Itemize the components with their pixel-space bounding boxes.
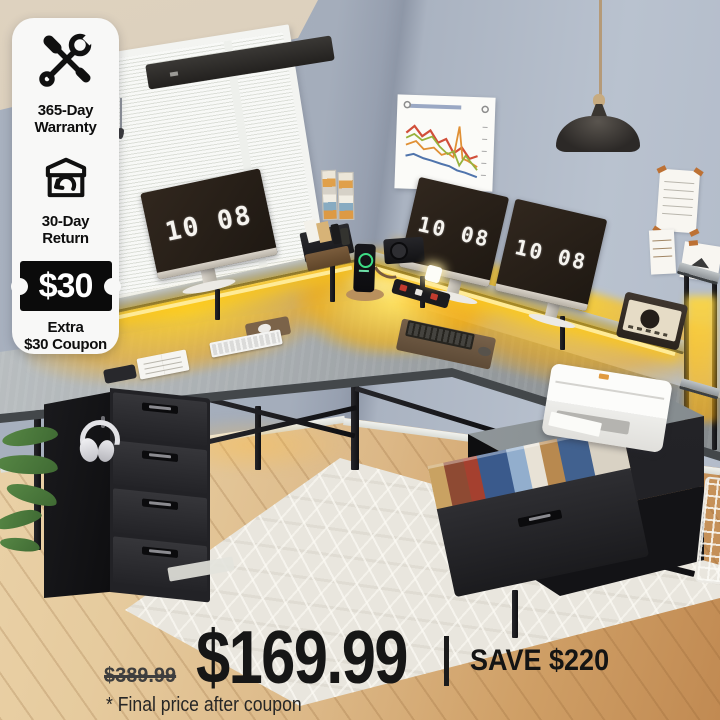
drawer-handle	[142, 498, 178, 510]
badge-panel: 365-Day Warranty 30-Day Return $30 Extra…	[12, 18, 119, 354]
coupon-ticket: $30	[20, 261, 112, 311]
coupon-notch	[11, 278, 28, 295]
wall-chart-poster	[394, 94, 495, 191]
cabinet-leg	[512, 590, 518, 638]
outlet	[430, 293, 438, 301]
warranty-label-line2: Warranty	[34, 119, 96, 136]
outlet	[415, 288, 423, 296]
drawer	[113, 440, 207, 494]
drawer-handle	[142, 546, 178, 558]
warranty-label-line1: 365-Day	[34, 102, 96, 119]
drawer-handle	[517, 509, 562, 527]
led-glow	[686, 296, 716, 422]
pinned-paper	[656, 169, 700, 234]
blind-cord	[120, 98, 122, 130]
return-label-line2: Return	[42, 230, 89, 247]
printer-lid-seam	[555, 381, 664, 400]
color-swatch-strip	[321, 170, 338, 220]
coupon-label-line1: Extra	[24, 319, 107, 336]
pinned-paper	[649, 229, 676, 274]
shelf-leg	[215, 289, 220, 320]
coupon-value: $30	[39, 267, 93, 306]
price-divider	[444, 636, 449, 686]
printer-button	[599, 373, 610, 380]
color-swatch-strip	[338, 172, 355, 220]
desk-leg	[255, 406, 261, 470]
drawer	[113, 392, 207, 446]
price-current: $169.99	[196, 620, 453, 695]
phone-text	[359, 270, 369, 272]
tools-icon	[34, 30, 98, 94]
coupon-notch	[104, 278, 121, 295]
shelf-leg	[330, 264, 335, 302]
drawer-handle	[142, 450, 178, 462]
desk-leg	[351, 380, 359, 470]
drawer-handle	[142, 402, 178, 414]
coupon-label-line2: $30 Coupon	[24, 336, 107, 353]
clock-display: 10 08	[513, 235, 590, 275]
charge-ring	[358, 253, 374, 269]
return-label-line1: 30-Day	[42, 213, 89, 230]
return-box-icon	[37, 148, 95, 206]
price-note: * Final price after coupon	[106, 694, 328, 717]
chart-poster-graphic	[394, 94, 495, 191]
clock-display: 10 08	[163, 200, 256, 248]
outlet	[399, 284, 407, 292]
price-original: $389.99	[104, 664, 180, 688]
charging-phone	[353, 244, 376, 293]
drawer	[113, 488, 207, 542]
product-image: 10 08 10 08 10 08	[0, 0, 720, 720]
clock-display: 10 08	[416, 212, 493, 252]
price-save-badge: SAVE $220	[470, 644, 625, 678]
